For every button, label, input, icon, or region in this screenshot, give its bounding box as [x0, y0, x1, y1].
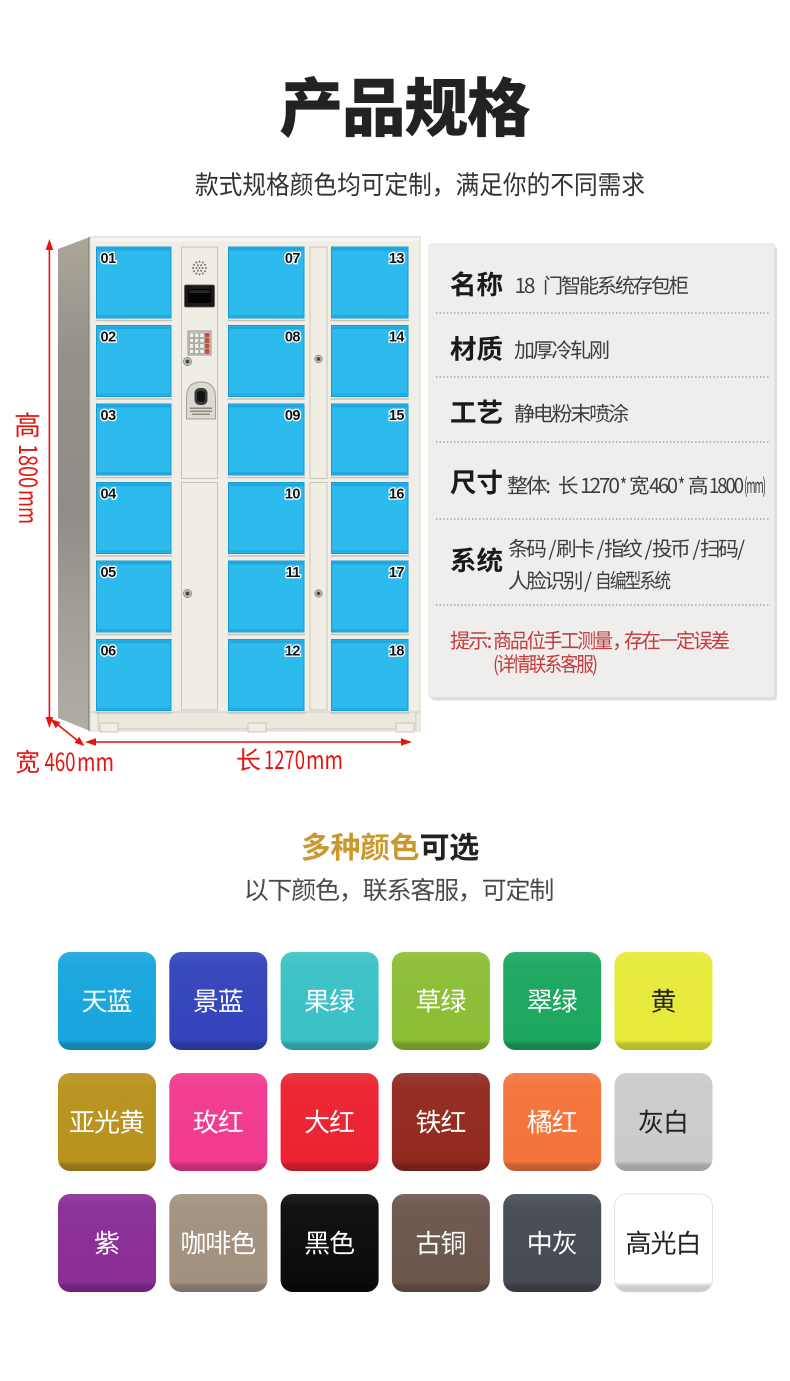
svg-text:01: 01: [101, 251, 117, 267]
svg-text:10: 10: [285, 487, 301, 503]
svg-text:12: 12: [285, 644, 301, 660]
svg-text:14: 14: [389, 330, 405, 346]
svg-text:15: 15: [389, 408, 405, 424]
svg-text:05: 05: [101, 565, 117, 581]
svg-text:16: 16: [389, 487, 405, 503]
svg-text:06: 06: [101, 644, 117, 660]
svg-text:04: 04: [101, 487, 117, 503]
svg-text:02: 02: [101, 330, 117, 346]
svg-text:03: 03: [101, 408, 117, 424]
svg-text:18: 18: [389, 644, 405, 660]
svg-text:08: 08: [285, 330, 301, 346]
svg-text:13: 13: [389, 251, 405, 267]
svg-text:11: 11: [286, 565, 301, 581]
svg-text:17: 17: [389, 565, 405, 581]
svg-text:07: 07: [285, 251, 301, 267]
svg-text:09: 09: [285, 408, 301, 424]
